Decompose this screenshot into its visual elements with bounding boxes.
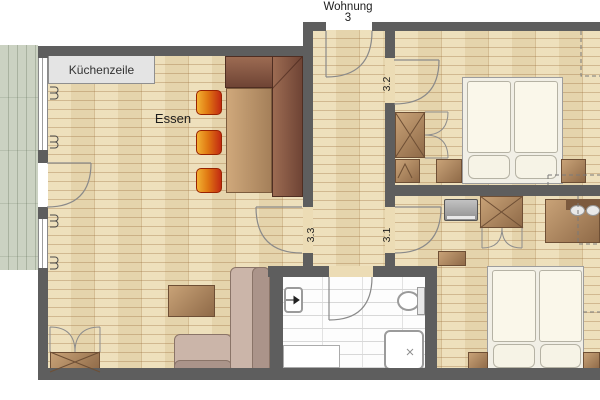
desk-chair: [586, 205, 600, 216]
mattress: [492, 270, 536, 342]
kitchen-counter: Küchenzeile: [48, 55, 155, 84]
coffee-table: [168, 285, 215, 317]
wall-segment: [38, 207, 48, 219]
room-number-3-3: 3.3: [305, 220, 317, 250]
mattress: [514, 81, 558, 153]
kitchen-label: Küchenzeile: [69, 63, 134, 77]
wall-segment: [38, 368, 600, 380]
wall-segment: [303, 22, 313, 207]
floor-plan: Küchenzeile: [0, 0, 600, 400]
wardrobe-top-bedroom: [395, 112, 425, 158]
hall-floor: [313, 30, 385, 266]
tv-screen: [447, 216, 475, 219]
washbasin: [284, 287, 303, 313]
dining-bench-right: [272, 56, 303, 197]
dining-chair: [196, 168, 222, 193]
toilet-cistern: [417, 287, 425, 315]
dining-label: Essen: [143, 111, 203, 126]
bath-counter: [283, 345, 340, 368]
terrace-door-opening: [38, 163, 48, 207]
mattress: [467, 81, 511, 153]
wall-segment: [270, 266, 283, 380]
pillow: [540, 344, 581, 368]
wall-segment: [385, 103, 395, 207]
desk-chair: [570, 205, 585, 216]
wall-segment: [38, 150, 48, 163]
room-number-3-2: 3.2: [381, 69, 393, 99]
dining-table: [226, 88, 272, 193]
pillow: [493, 344, 535, 368]
window: [38, 58, 48, 150]
wall-segment: [38, 268, 48, 380]
wall-segment: [395, 185, 600, 196]
nightstand: [436, 159, 462, 183]
apartment-label-line2: 3: [345, 12, 351, 24]
wall-segment: [385, 30, 395, 58]
dining-chair: [196, 130, 222, 155]
wall-segment: [38, 46, 313, 56]
pillow: [468, 155, 510, 179]
wall-segment: [372, 22, 600, 31]
bath-door-threshold: [329, 266, 373, 277]
nightstand: [561, 159, 586, 183]
room-number-3-1: 3.1: [381, 220, 393, 250]
wardrobe-bottom-room: [480, 196, 523, 228]
sideboard: [438, 251, 466, 266]
terrace-deck: [0, 45, 38, 270]
mattress: [539, 270, 582, 342]
dresser: [395, 159, 420, 183]
shower: [384, 330, 424, 370]
wall-segment: [38, 46, 48, 58]
pillow: [515, 155, 557, 179]
sofa-back: [252, 267, 270, 373]
window: [38, 219, 48, 268]
apartment-label: Wohnung 3: [317, 2, 379, 24]
wall-segment: [425, 266, 437, 380]
